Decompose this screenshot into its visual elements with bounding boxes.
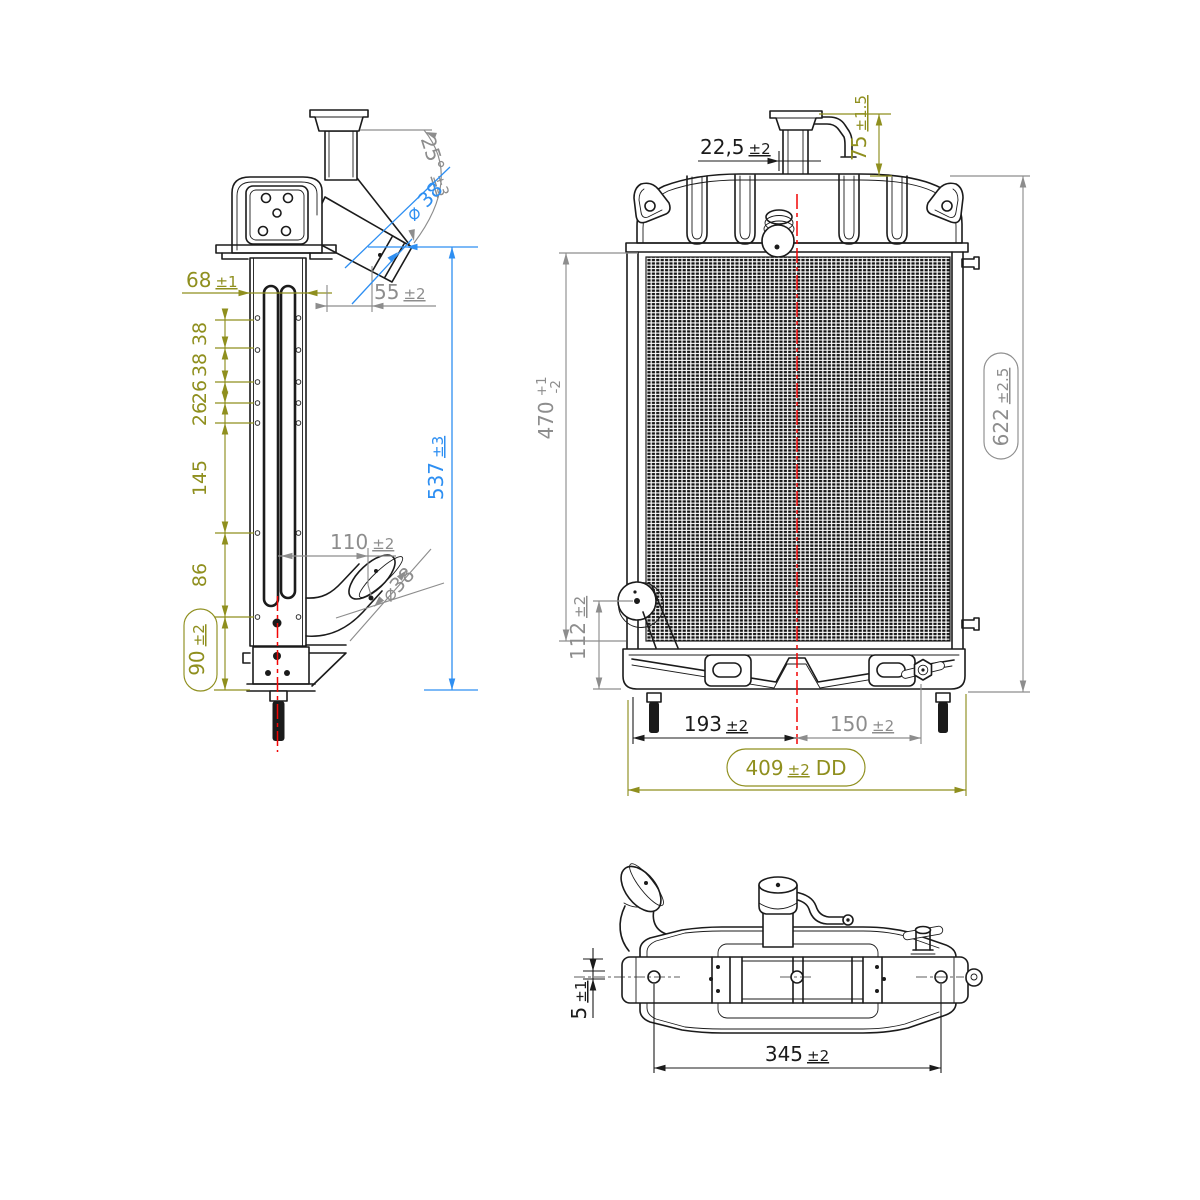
- dim-label: 110±2: [330, 530, 394, 554]
- pin-cap: [270, 691, 287, 701]
- dim-label: 193±2: [684, 712, 748, 736]
- dim-flange-gap-5: 5±1: [567, 948, 605, 1019]
- dim-label: 86: [189, 563, 211, 587]
- dim-label: 75±1.5: [847, 95, 871, 161]
- mounting-pin-right: [938, 702, 948, 733]
- filler-neck-side: [310, 110, 368, 180]
- core: [627, 252, 979, 649]
- lower-tank-front: [623, 649, 965, 733]
- radiator-technical-drawing: 68±1 38 38 26 26 145 86 90±2 537±3: [0, 0, 1200, 1200]
- body-top: [622, 957, 982, 1003]
- dim-total-height-622: 622±2.5: [950, 176, 1030, 692]
- dim-label: 622±2.5: [989, 368, 1013, 447]
- side-view: 68±1 38 38 26 26 145 86 90±2 537±3: [182, 110, 478, 752]
- filler-cap-top: [759, 877, 797, 947]
- dim-label: 38: [189, 322, 211, 346]
- dim-core-height-470: 470+1-2: [534, 253, 638, 641]
- dim-foot-offset-90: 90±2: [184, 609, 250, 691]
- end-handle: [966, 969, 982, 986]
- dim-label: 38: [189, 353, 211, 377]
- side-pin-bottom: [962, 618, 979, 630]
- dim-label: 470+1-2: [534, 376, 564, 439]
- mounting-pin-left: [649, 702, 659, 733]
- dim-label: 5±1: [567, 981, 591, 1020]
- dim-label: 26: [189, 402, 211, 426]
- dim-label: 112±2: [566, 596, 590, 660]
- pin-cap: [936, 693, 950, 702]
- dim-total-height-537: 537±3: [368, 244, 478, 690]
- dim-center-to-drain-150: 150±2: [796, 684, 921, 744]
- dim-label: 22,5±2: [700, 135, 771, 159]
- dim-neck-height-75: 75±1.5: [819, 95, 892, 176]
- side-channel: [250, 258, 306, 646]
- dim-label: 345±2: [765, 1042, 829, 1066]
- dim-label: 409±2DD: [745, 756, 846, 780]
- overflow-tube-top: [793, 892, 853, 925]
- tank-boss: [762, 210, 794, 257]
- drawing-canvas: 68±1 38 38 26 26 145 86 90±2 537±3: [0, 0, 1200, 1200]
- top-view: 5±1 345±2: [567, 859, 982, 1073]
- front-view: 22,5±2 75±1.5 470+1-2 622±2.5 112±2 193±…: [534, 95, 1030, 796]
- pin-cap: [647, 693, 661, 702]
- dim-label: 537±3: [424, 436, 448, 500]
- dim-label: 150±2: [830, 712, 894, 736]
- dim-label: 90±2: [185, 624, 209, 676]
- dim-label: 68±1: [186, 268, 238, 292]
- side-pin-top: [962, 257, 979, 269]
- upper-tank-side: [232, 177, 322, 253]
- mounting-pin: [273, 701, 285, 741]
- dim-label: 145: [189, 460, 211, 496]
- dim-label: 55±2: [374, 280, 426, 304]
- dim-label: 26: [189, 380, 211, 404]
- mount-slot-plate-left: [705, 655, 751, 686]
